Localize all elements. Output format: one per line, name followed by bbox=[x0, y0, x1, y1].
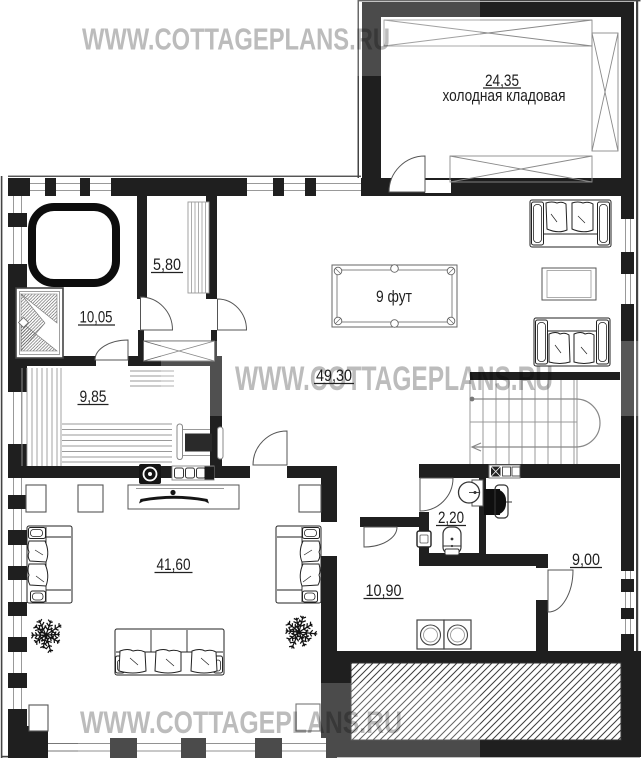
svg-text:WWW.COTTAGEPLANS.RU: WWW.COTTAGEPLANS.RU bbox=[80, 704, 402, 740]
svg-text:41,60: 41,60 bbox=[157, 555, 191, 574]
svg-text:9 фут: 9 фут bbox=[376, 287, 412, 306]
svg-text:2,20: 2,20 bbox=[438, 508, 464, 527]
svg-text:10,90: 10,90 bbox=[366, 581, 402, 600]
svg-text:49,30: 49,30 bbox=[316, 366, 352, 385]
svg-text:холодная кладовая: холодная кладовая bbox=[443, 86, 566, 105]
svg-text:WWW.COTTAGEPLANS.RU: WWW.COTTAGEPLANS.RU bbox=[235, 360, 553, 398]
svg-text:WWW.COTTAGEPLANS.RU: WWW.COTTAGEPLANS.RU bbox=[82, 22, 390, 57]
svg-text:9,85: 9,85 bbox=[80, 387, 107, 406]
svg-text:9,00: 9,00 bbox=[572, 550, 600, 569]
svg-text:5,80: 5,80 bbox=[153, 255, 181, 274]
svg-text:10,05: 10,05 bbox=[80, 308, 113, 327]
